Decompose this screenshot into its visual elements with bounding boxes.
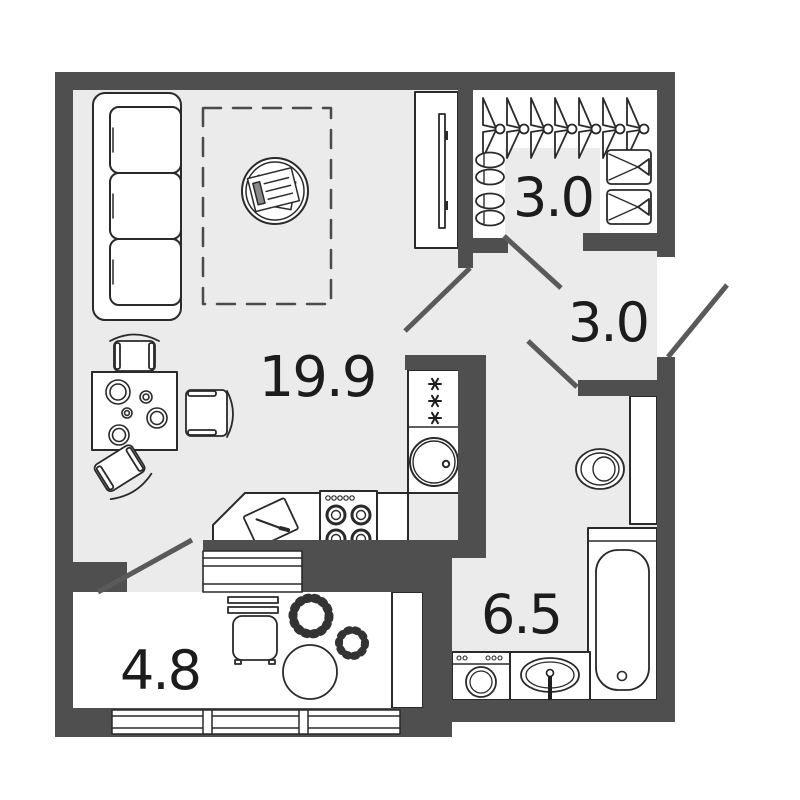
balcony-cabinet xyxy=(392,592,423,708)
toilet-icon xyxy=(576,449,624,489)
stool-icon xyxy=(228,597,278,664)
balcony-window-unit xyxy=(203,551,302,592)
wall-wardrobe-bottom-right xyxy=(583,233,657,251)
entrance-door xyxy=(668,285,727,357)
wall-bathroom-bottom xyxy=(452,700,675,722)
wall-above-fridge xyxy=(405,355,465,370)
wall-right-top xyxy=(657,72,675,257)
round-table-icon xyxy=(283,645,337,699)
hallway-area-label: 3.0 xyxy=(568,291,648,354)
cistern-panel xyxy=(630,396,657,524)
sofa xyxy=(93,93,181,320)
wall-balcony-bathroom xyxy=(423,558,452,737)
fridge-sink-unit xyxy=(408,370,463,493)
wall-hallway-bathroom xyxy=(578,380,657,396)
wall-kitchen-right xyxy=(458,355,486,558)
floor-plan: 19.9 3.0 3.0 6.5 4.8 xyxy=(0,0,800,800)
balcony-windows xyxy=(112,710,400,734)
living-room-area-label: 19.9 xyxy=(259,345,376,410)
bathroom-area-label: 6.5 xyxy=(481,583,561,646)
bathtub-icon xyxy=(588,528,657,700)
coffee-table-magazines-icon xyxy=(242,158,308,224)
tv-stand xyxy=(415,92,458,248)
countertop xyxy=(213,493,408,548)
wardrobe-area-label: 3.0 xyxy=(513,166,593,229)
wall-top xyxy=(55,72,675,90)
dining-table xyxy=(92,372,177,450)
wall-balcony-top-left xyxy=(55,562,127,592)
wall-wardrobe-bottom-left xyxy=(458,238,508,253)
bathroom-sink-icon xyxy=(510,652,590,702)
chair-right xyxy=(186,390,233,437)
balcony-area-label: 4.8 xyxy=(120,639,200,702)
washing-machine-icon xyxy=(452,652,510,700)
wall-right-bottom xyxy=(657,357,675,722)
wall-left xyxy=(55,72,73,737)
stove xyxy=(320,491,377,548)
floor-plan-canvas: 19.9 3.0 3.0 6.5 4.8 xyxy=(0,0,800,800)
